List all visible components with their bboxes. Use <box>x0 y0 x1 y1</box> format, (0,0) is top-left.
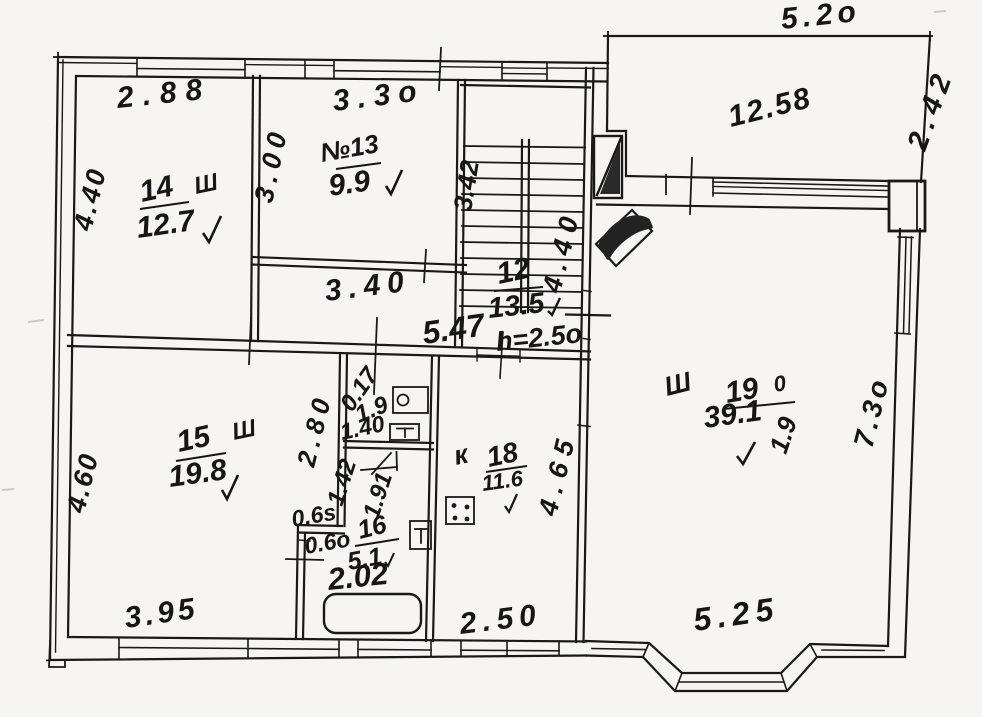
svg-text:12: 12 <box>494 252 534 291</box>
svg-text:13.5: 13.5 <box>486 287 546 325</box>
svg-text:2.02: 2.02 <box>325 556 390 597</box>
svg-text:14: 14 <box>137 170 177 209</box>
svg-text:9.9: 9.9 <box>326 164 372 203</box>
